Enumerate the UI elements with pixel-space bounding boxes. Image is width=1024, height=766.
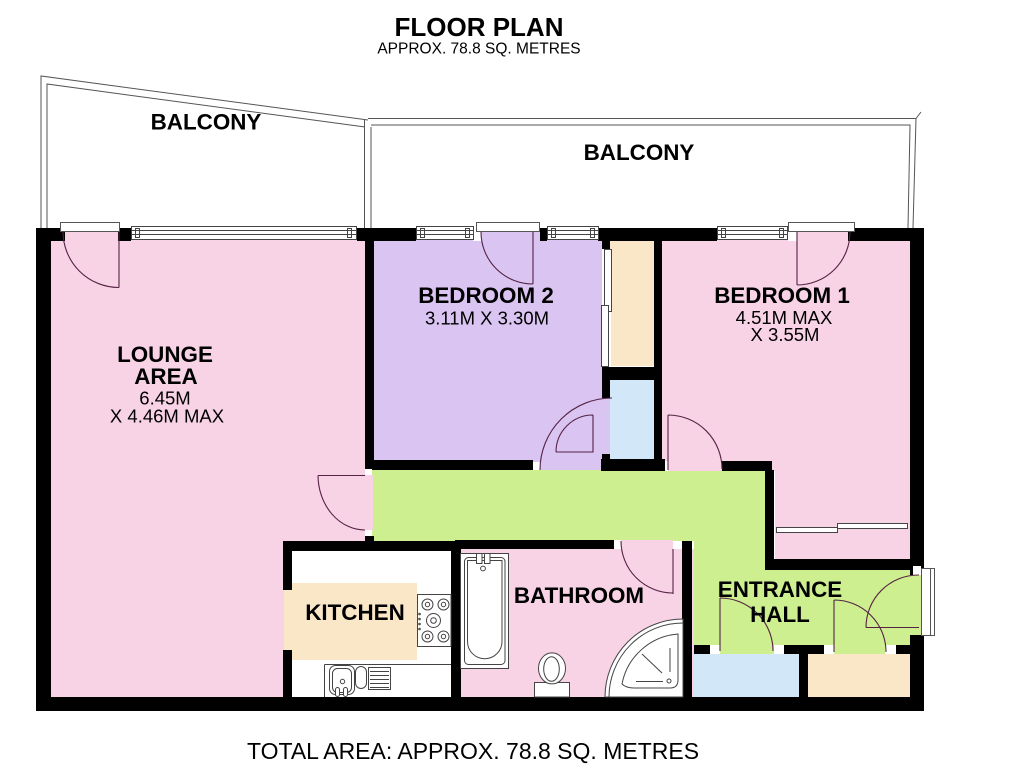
svg-text:X 4.46M MAX: X 4.46M MAX <box>110 406 224 427</box>
svg-text:KITCHEN: KITCHEN <box>305 600 405 625</box>
svg-text:HALL: HALL <box>750 602 810 627</box>
svg-text:ENTRANCE: ENTRANCE <box>718 577 842 602</box>
svg-text:BALCONY: BALCONY <box>151 110 262 135</box>
svg-text:3.11M X 3.30M: 3.11M X 3.30M <box>425 308 549 329</box>
svg-text:BEDROOM 2: BEDROOM 2 <box>418 283 554 308</box>
svg-text:APPROX. 78.8 SQ. METRES: APPROX. 78.8 SQ. METRES <box>377 41 580 58</box>
svg-text:BATHROOM: BATHROOM <box>514 583 644 608</box>
svg-text:FLOOR PLAN: FLOOR PLAN <box>395 12 564 42</box>
svg-text:BEDROOM 1: BEDROOM 1 <box>714 283 850 308</box>
svg-text:AREA: AREA <box>134 364 197 389</box>
svg-text:TOTAL AREA: APPROX. 78.8 SQ. M: TOTAL AREA: APPROX. 78.8 SQ. METRES <box>247 738 699 764</box>
svg-text:BALCONY: BALCONY <box>584 140 695 165</box>
svg-text:X 3.55M: X 3.55M <box>751 324 820 345</box>
